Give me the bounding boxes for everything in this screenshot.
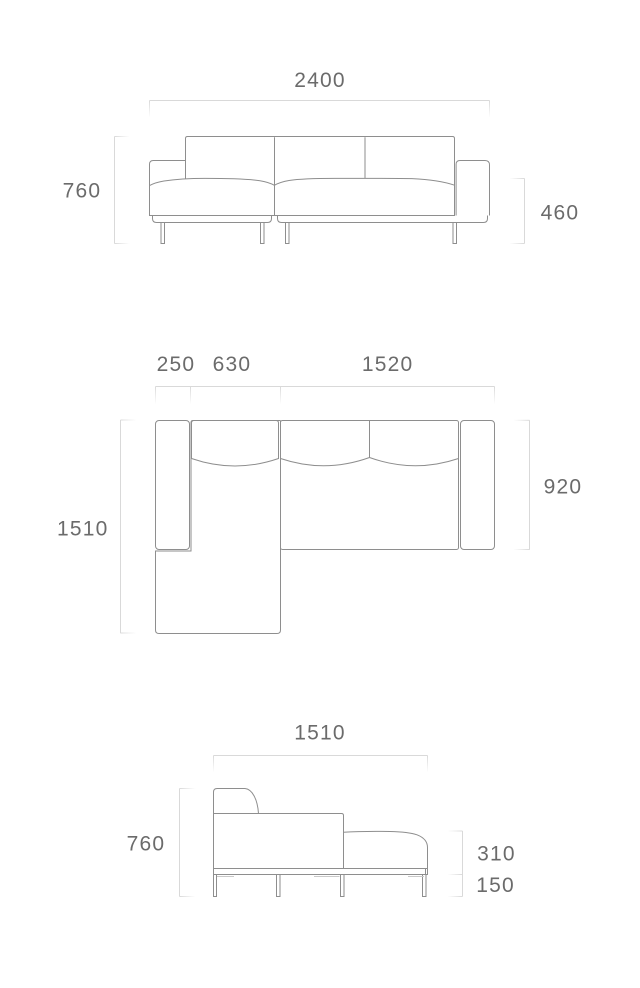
- svg-text:1510: 1510: [57, 518, 109, 541]
- svg-text:2400: 2400: [294, 69, 346, 92]
- svg-text:920: 920: [544, 476, 583, 499]
- svg-text:310: 310: [477, 842, 516, 865]
- svg-text:760: 760: [127, 833, 166, 856]
- svg-text:150: 150: [476, 874, 515, 897]
- svg-text:1510: 1510: [294, 722, 346, 745]
- svg-text:630: 630: [213, 353, 252, 376]
- svg-text:460: 460: [541, 202, 580, 225]
- svg-text:250: 250: [157, 353, 196, 376]
- svg-text:760: 760: [63, 180, 102, 203]
- svg-text:1520: 1520: [362, 353, 414, 376]
